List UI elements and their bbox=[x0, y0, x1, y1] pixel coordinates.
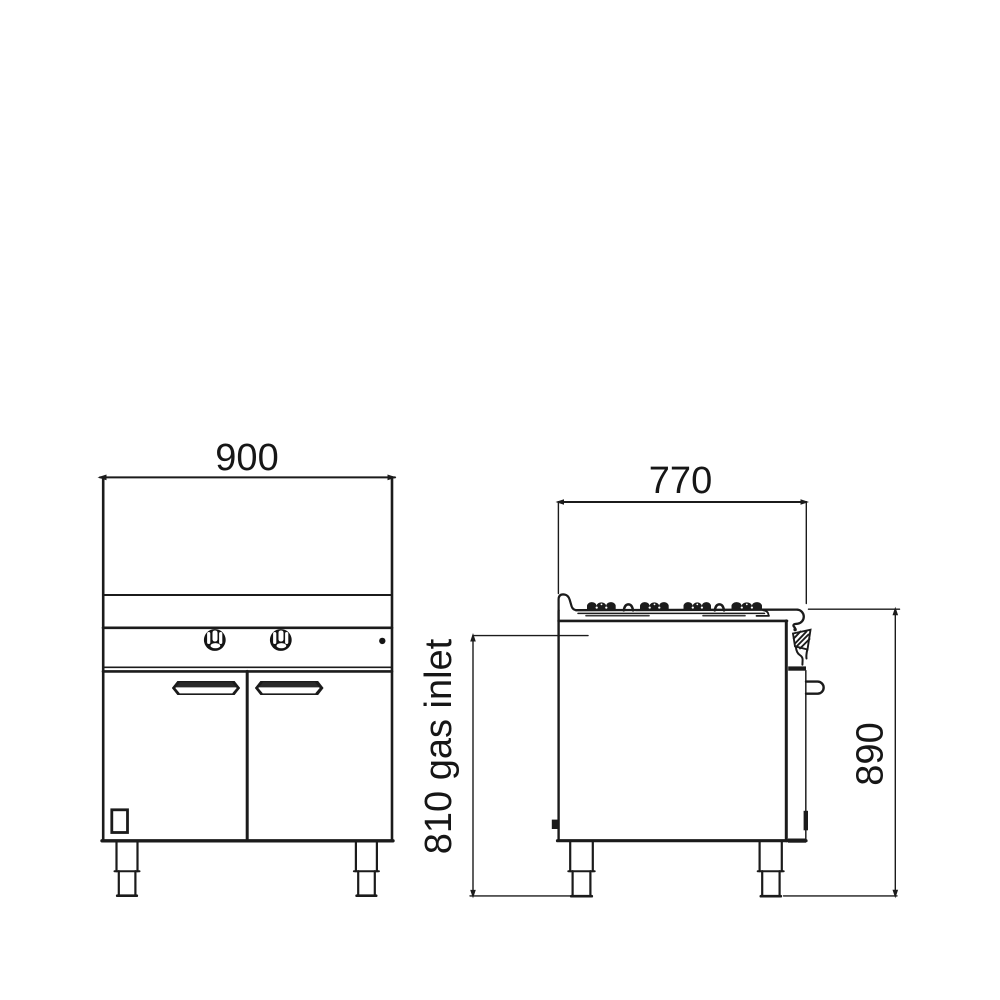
svg-text:770: 770 bbox=[649, 460, 712, 502]
svg-text:900: 900 bbox=[215, 437, 278, 479]
svg-text:890: 890 bbox=[850, 722, 892, 785]
svg-text:810 gas inlet: 810 gas inlet bbox=[418, 638, 460, 854]
